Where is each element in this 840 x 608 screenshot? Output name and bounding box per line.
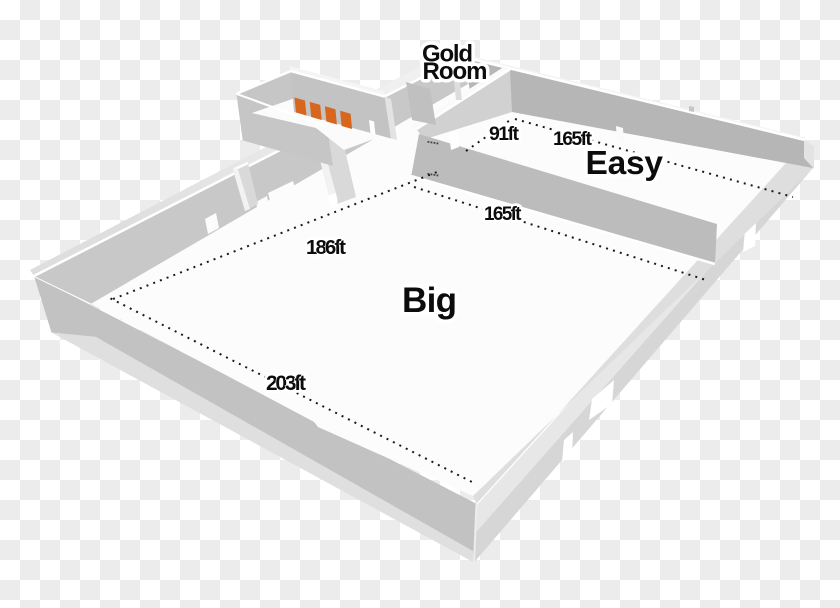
svg-text:91ft: 91ft	[489, 123, 520, 145]
svg-text:Easy: Easy	[586, 145, 664, 182]
svg-text:203ft: 203ft	[266, 372, 306, 395]
svg-text:Big: Big	[402, 281, 457, 320]
svg-text:165ft: 165ft	[553, 128, 593, 150]
svg-text:165ft: 165ft	[484, 204, 522, 225]
svg-text:Room: Room	[423, 58, 488, 85]
svg-text:186ft: 186ft	[306, 236, 346, 259]
